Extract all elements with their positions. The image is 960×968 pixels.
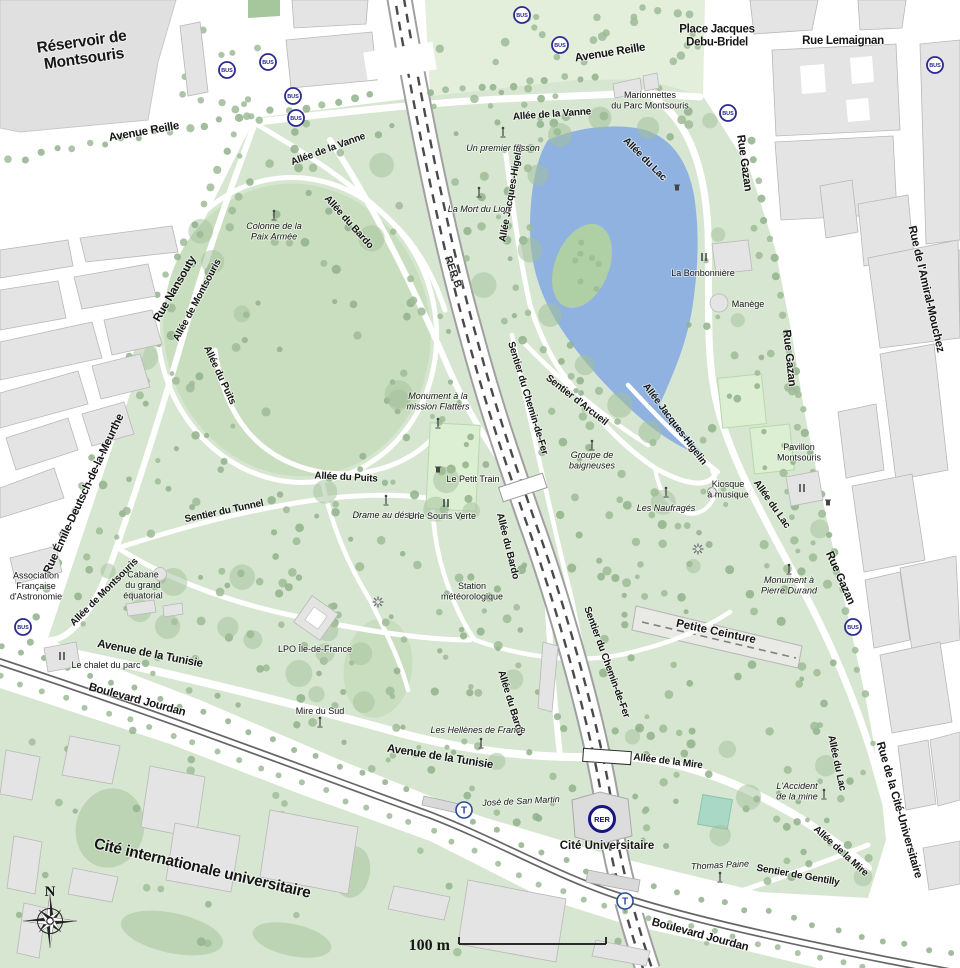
tree xyxy=(265,159,274,168)
tree xyxy=(343,799,349,805)
tree xyxy=(578,239,584,245)
tree xyxy=(572,258,578,264)
tree xyxy=(564,857,570,863)
tree xyxy=(436,45,444,53)
tree xyxy=(68,145,75,152)
tree xyxy=(288,568,297,577)
tree xyxy=(448,379,453,384)
building xyxy=(820,180,858,238)
tree xyxy=(783,857,790,864)
rer-icon-label: RER xyxy=(594,815,610,824)
tree xyxy=(761,429,766,434)
tree xyxy=(537,121,545,129)
tree xyxy=(243,630,262,649)
tree xyxy=(556,511,564,519)
tree xyxy=(518,842,524,848)
tree xyxy=(548,123,572,147)
tree xyxy=(820,700,828,708)
tree xyxy=(516,872,522,878)
tree xyxy=(256,665,264,673)
tree xyxy=(711,227,726,242)
tree xyxy=(800,849,806,855)
tree xyxy=(341,740,346,745)
bus-icon: BUS xyxy=(514,7,530,23)
tree xyxy=(750,608,758,616)
tree xyxy=(133,805,141,813)
tree xyxy=(83,553,90,560)
tree xyxy=(234,305,251,322)
tree xyxy=(366,91,373,98)
tree xyxy=(830,659,837,666)
tree xyxy=(673,799,679,805)
tree xyxy=(698,897,704,903)
tree xyxy=(242,337,248,343)
bus-icon-label: BUS xyxy=(221,68,233,74)
bus-icon: BUS xyxy=(552,37,568,53)
tree xyxy=(795,548,800,553)
label-une-souris-verte: Une Souris Verte xyxy=(408,511,476,521)
tree xyxy=(614,418,621,425)
tree xyxy=(601,903,607,909)
tree xyxy=(617,470,625,478)
compass-north-label: N xyxy=(45,884,56,900)
tree xyxy=(658,520,667,529)
bus-icon-label: BUS xyxy=(722,111,734,117)
tree xyxy=(755,252,762,259)
label-lpo-le-de-france: LPO Île-de-France xyxy=(278,644,352,654)
building xyxy=(750,0,818,34)
tree xyxy=(245,96,251,102)
tree xyxy=(462,461,469,468)
bus-icon-label: BUS xyxy=(554,43,566,49)
tree xyxy=(198,97,205,104)
label-un-premier-frisson: Un premier frisson xyxy=(466,143,540,153)
tree xyxy=(644,714,649,719)
tree xyxy=(862,690,869,697)
tree xyxy=(392,724,400,732)
monument-top xyxy=(319,717,322,720)
tree xyxy=(229,564,255,590)
tree xyxy=(172,377,180,385)
tree xyxy=(597,573,605,581)
tree xyxy=(630,18,638,26)
tree xyxy=(554,54,561,61)
tree xyxy=(390,228,397,235)
tree xyxy=(771,254,779,262)
bus-icon-label: BUS xyxy=(262,60,274,66)
tree xyxy=(767,350,775,358)
tree xyxy=(836,927,842,933)
scale-label: 100 m xyxy=(409,937,451,954)
tree xyxy=(320,260,327,267)
label-association-fran-aise-d-astronomie: AssociationFrançaised'Astronomie xyxy=(10,571,62,602)
tree xyxy=(55,145,61,151)
tree xyxy=(224,148,231,155)
building-courtyard xyxy=(846,98,870,122)
tree xyxy=(554,713,561,720)
tree xyxy=(174,446,179,451)
tree xyxy=(515,662,521,668)
tree xyxy=(865,854,873,862)
tree xyxy=(468,684,473,689)
building xyxy=(286,32,377,88)
tree xyxy=(794,424,801,431)
label-mire-du-sud: Mire du Sud xyxy=(296,706,345,716)
tree xyxy=(295,523,304,532)
building xyxy=(923,841,960,890)
tree xyxy=(464,495,472,503)
tree xyxy=(204,433,209,438)
tree xyxy=(357,466,363,472)
tree xyxy=(639,421,662,444)
tree xyxy=(531,24,537,30)
tree xyxy=(621,612,627,618)
tree xyxy=(174,253,181,260)
tree xyxy=(198,575,203,580)
tree xyxy=(313,753,319,759)
tree xyxy=(560,725,567,732)
tree xyxy=(686,559,700,573)
tree xyxy=(748,137,756,145)
tree xyxy=(731,313,745,327)
tree xyxy=(349,642,372,665)
tree xyxy=(235,114,243,122)
tree xyxy=(703,322,711,330)
bus-icon: BUS xyxy=(720,105,736,121)
bin xyxy=(826,501,830,506)
tree xyxy=(559,438,568,447)
tree xyxy=(773,816,780,823)
tree xyxy=(235,702,240,707)
tree xyxy=(195,372,203,380)
tree xyxy=(403,313,411,321)
tree xyxy=(518,336,527,345)
bus-icon: BUS xyxy=(285,88,301,104)
tree xyxy=(197,937,206,946)
bus-icon-label: BUS xyxy=(516,13,528,19)
label-le-petit-train: Le Petit Train xyxy=(446,474,499,484)
tree xyxy=(651,883,657,889)
tree xyxy=(218,568,225,575)
tree xyxy=(454,131,459,136)
tree xyxy=(437,313,443,319)
tree xyxy=(191,431,199,439)
tree xyxy=(702,113,717,128)
tree xyxy=(576,531,583,538)
tree xyxy=(461,738,467,744)
tree xyxy=(521,102,527,108)
tree xyxy=(301,238,310,247)
tree xyxy=(860,770,866,776)
tree xyxy=(162,271,168,277)
tree xyxy=(700,488,706,494)
tree xyxy=(405,819,411,825)
tree xyxy=(106,711,112,717)
tree xyxy=(417,307,425,315)
tree xyxy=(549,773,556,780)
tree xyxy=(17,682,23,688)
building xyxy=(858,0,906,30)
tree xyxy=(719,741,736,758)
tree xyxy=(595,387,603,395)
tree xyxy=(403,434,411,442)
tree xyxy=(308,686,324,702)
tree xyxy=(480,172,489,181)
tree xyxy=(246,178,254,186)
tree xyxy=(663,843,669,849)
tree xyxy=(114,534,119,539)
tree xyxy=(409,296,417,304)
tree xyxy=(266,107,273,114)
tree xyxy=(791,915,797,921)
label-le-chalet-du-parc: Le chalet du parc xyxy=(71,660,141,670)
tree xyxy=(536,882,542,888)
tree xyxy=(746,590,754,598)
monument-top xyxy=(591,440,594,443)
tree xyxy=(517,627,523,633)
tree xyxy=(459,85,465,91)
tree xyxy=(567,342,574,349)
tree xyxy=(675,523,682,530)
tree xyxy=(676,730,682,736)
tree xyxy=(611,574,619,582)
tree xyxy=(642,808,648,814)
tree xyxy=(316,671,322,677)
tree xyxy=(444,745,449,750)
tree xyxy=(684,522,691,529)
tree xyxy=(350,301,358,309)
tree xyxy=(561,73,568,80)
tree xyxy=(538,137,544,143)
tree xyxy=(590,36,598,44)
tree xyxy=(293,721,300,728)
tree xyxy=(186,124,194,132)
tree xyxy=(400,551,406,557)
label-les-hell-nes-de-france: Les Hellènes de France xyxy=(430,725,525,735)
tree xyxy=(661,590,668,597)
tree xyxy=(801,429,809,437)
label-les-naufrag-s: Les Naufragés xyxy=(637,503,696,513)
tree xyxy=(267,496,276,505)
tree xyxy=(777,292,784,299)
tree xyxy=(38,149,45,156)
tree xyxy=(142,660,149,667)
tree xyxy=(755,177,762,184)
tree xyxy=(293,537,301,545)
bus-icon: BUS xyxy=(260,54,276,70)
tree xyxy=(155,478,161,484)
tree xyxy=(755,941,761,947)
tree xyxy=(303,105,311,113)
tree xyxy=(488,103,494,109)
tree xyxy=(427,89,434,96)
tree xyxy=(171,733,177,739)
tree xyxy=(783,564,792,573)
tree xyxy=(817,778,823,784)
tree xyxy=(670,662,676,668)
tree xyxy=(765,727,773,735)
tree xyxy=(686,322,692,328)
tree xyxy=(85,566,93,574)
tree xyxy=(355,562,364,571)
tree xyxy=(495,861,501,867)
tree xyxy=(281,800,288,807)
tree xyxy=(427,766,435,774)
tree xyxy=(492,59,499,66)
bus-icon-label: BUS xyxy=(290,116,302,122)
tree xyxy=(290,145,298,153)
label-cit-universitaire: Cité Universitaire xyxy=(560,840,655,852)
tree xyxy=(235,193,243,201)
monument-top xyxy=(823,789,826,792)
tree xyxy=(467,573,474,580)
tree xyxy=(192,498,200,506)
tree xyxy=(351,94,359,102)
tree xyxy=(731,351,739,359)
tree xyxy=(22,156,29,163)
tree xyxy=(641,593,648,600)
tree xyxy=(275,589,283,597)
tree xyxy=(272,792,279,799)
tree xyxy=(510,83,518,91)
tree xyxy=(469,785,475,791)
sports-court xyxy=(698,795,733,830)
tree xyxy=(799,677,804,682)
tree xyxy=(824,817,830,823)
tree xyxy=(431,104,436,109)
building xyxy=(772,44,900,136)
tree xyxy=(16,912,22,918)
tree xyxy=(635,574,640,579)
tree xyxy=(539,31,546,38)
tree xyxy=(567,564,576,573)
tree xyxy=(180,238,188,246)
monument-top xyxy=(385,495,388,498)
tree xyxy=(436,609,443,616)
tree xyxy=(659,725,667,733)
tree xyxy=(368,765,376,773)
tree xyxy=(612,727,619,734)
manege-building xyxy=(710,294,728,312)
tree xyxy=(818,510,826,518)
tree xyxy=(512,284,519,291)
tree xyxy=(472,848,478,854)
tree xyxy=(348,537,353,542)
tree xyxy=(245,729,251,735)
tree xyxy=(201,123,208,130)
tree xyxy=(482,461,489,468)
tree xyxy=(201,201,208,208)
tree xyxy=(512,313,517,318)
tree xyxy=(237,153,242,158)
tree xyxy=(126,476,132,482)
tree xyxy=(809,553,818,562)
compass-hub xyxy=(47,918,53,924)
tree xyxy=(229,50,235,56)
tree xyxy=(460,632,467,639)
tree xyxy=(589,255,595,261)
tree xyxy=(306,190,312,196)
tree xyxy=(558,358,565,365)
tree xyxy=(453,948,462,957)
tree xyxy=(96,527,103,534)
tree xyxy=(748,660,757,669)
tree xyxy=(823,580,832,589)
bin xyxy=(675,186,679,191)
tree xyxy=(674,889,680,895)
tree xyxy=(482,608,487,613)
tree xyxy=(560,888,566,894)
monument-top xyxy=(788,564,791,567)
tree xyxy=(811,540,816,545)
tree xyxy=(254,45,261,52)
tree xyxy=(218,52,224,58)
tree xyxy=(741,907,747,913)
tree xyxy=(576,377,584,385)
tram-icon-label: T xyxy=(622,897,628,908)
tree xyxy=(169,371,174,376)
tree xyxy=(709,825,730,846)
tree xyxy=(332,265,341,274)
tree xyxy=(39,688,45,694)
tree xyxy=(513,604,520,611)
tree xyxy=(658,539,666,547)
tree xyxy=(417,847,424,854)
tree xyxy=(147,530,155,538)
tree xyxy=(805,860,812,867)
tree xyxy=(258,766,264,772)
tree xyxy=(389,614,394,619)
label-monument-pierre-durand: Monument àPierre Durand xyxy=(761,575,818,596)
tree xyxy=(442,86,449,93)
label-man-ge: Manège xyxy=(732,299,765,309)
tree xyxy=(760,540,769,549)
tree xyxy=(842,607,850,615)
label-colonne-de-la-paix-arm-e: Colonne de laPaix Armée xyxy=(246,221,302,242)
tree xyxy=(598,32,607,41)
tree xyxy=(231,106,239,114)
tree xyxy=(226,223,234,231)
tree xyxy=(403,786,409,792)
tree xyxy=(705,770,713,778)
label-la-bonbonni-re: La Bonbonnière xyxy=(671,268,735,278)
tree xyxy=(143,884,151,892)
tree xyxy=(578,279,584,285)
tree xyxy=(527,164,548,185)
tree xyxy=(296,574,302,580)
tree xyxy=(439,416,446,423)
tree xyxy=(225,718,231,724)
tree xyxy=(674,9,682,17)
bus-icon-label: BUS xyxy=(929,63,941,69)
tree xyxy=(73,808,78,813)
tree xyxy=(431,687,439,695)
tree xyxy=(706,541,713,548)
tree xyxy=(446,329,451,334)
monument-top xyxy=(665,487,668,490)
tree xyxy=(42,872,49,879)
tree xyxy=(826,532,832,538)
tree xyxy=(639,4,646,11)
tree xyxy=(571,493,579,501)
tree xyxy=(627,654,634,661)
tree xyxy=(314,514,319,519)
tree xyxy=(538,303,562,327)
building xyxy=(838,404,884,478)
tree xyxy=(382,480,388,486)
tree xyxy=(852,647,859,654)
tree xyxy=(901,941,907,947)
